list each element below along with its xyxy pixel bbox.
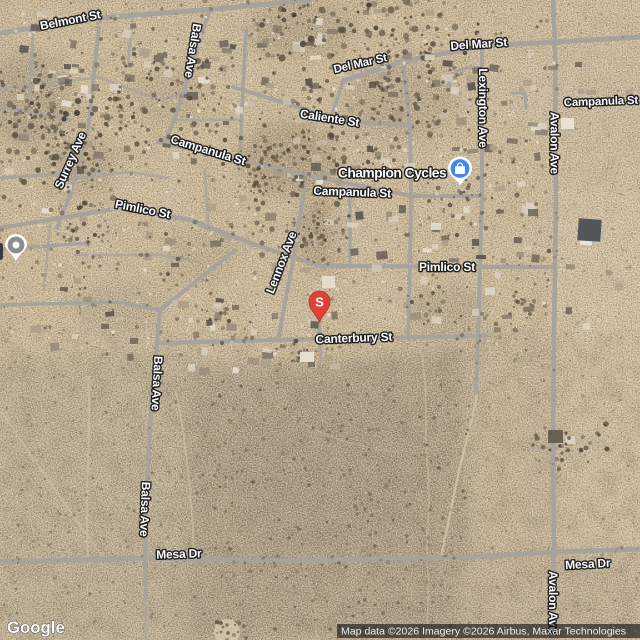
svg-text:Map data ©2026 Imagery ©2026 A: Map data ©2026 Imagery ©2026 Airbus, Max… xyxy=(341,626,626,638)
svg-text:Mesa Dr: Mesa Dr xyxy=(565,556,611,572)
svg-text:Campanula St: Campanula St xyxy=(313,184,391,201)
svg-text:Google: Google xyxy=(7,618,65,637)
svg-text:Canterbury St: Canterbury St xyxy=(315,330,392,347)
svg-text:S: S xyxy=(315,295,324,310)
svg-text:Balsa Ave: Balsa Ave xyxy=(137,482,153,538)
svg-text:Lexington Ave: Lexington Ave xyxy=(476,68,490,148)
svg-text:Pimlico St: Pimlico St xyxy=(419,260,475,274)
svg-text:Champion Cycles: Champion Cycles xyxy=(338,166,447,181)
svg-text:Balsa Ave: Balsa Ave xyxy=(149,356,166,412)
svg-text:Avalon Ave: Avalon Ave xyxy=(548,112,562,175)
svg-text:Mesa Dr: Mesa Dr xyxy=(156,546,202,562)
